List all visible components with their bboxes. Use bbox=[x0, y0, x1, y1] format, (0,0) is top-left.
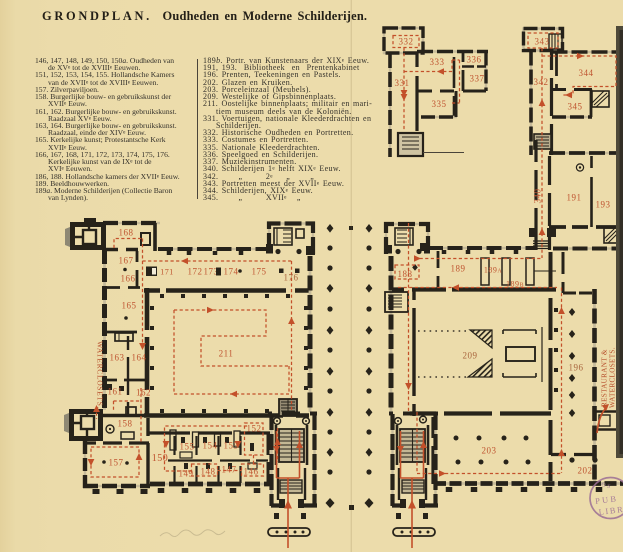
svg-text:340: 340 bbox=[533, 189, 543, 204]
svg-text:162: 162 bbox=[136, 388, 151, 398]
svg-text:174: 174 bbox=[224, 267, 239, 277]
svg-text:211: 211 bbox=[219, 349, 234, 359]
svg-text:146: 146 bbox=[244, 467, 259, 477]
svg-text:171: 171 bbox=[160, 268, 174, 277]
svg-text:167: 167 bbox=[119, 256, 134, 266]
svg-text:168: 168 bbox=[119, 228, 134, 238]
svg-text:344: 344 bbox=[579, 68, 594, 78]
svg-text:149: 149 bbox=[179, 469, 194, 479]
svg-text:OS: OS bbox=[601, 482, 613, 490]
svg-text:332: 332 bbox=[399, 37, 414, 47]
svg-text:161: 161 bbox=[108, 387, 123, 397]
svg-text:163: 163 bbox=[110, 353, 125, 363]
svg-text:203: 203 bbox=[482, 446, 497, 456]
svg-text:196: 196 bbox=[569, 363, 584, 373]
svg-text:LIBR: LIBR bbox=[598, 504, 623, 517]
svg-text:335: 335 bbox=[432, 99, 447, 109]
svg-text:345: 345 bbox=[568, 102, 583, 112]
svg-text:155: 155 bbox=[180, 442, 195, 452]
svg-text:165: 165 bbox=[122, 301, 137, 311]
svg-text:WATERCLOSETS.: WATERCLOSETS. bbox=[96, 341, 105, 409]
svg-text:164: 164 bbox=[132, 353, 147, 363]
svg-text:154: 154 bbox=[203, 441, 218, 451]
svg-text:150: 150 bbox=[152, 453, 169, 464]
svg-text:175: 175 bbox=[252, 267, 267, 277]
svg-text:152: 152 bbox=[247, 424, 262, 434]
svg-text:166: 166 bbox=[121, 274, 136, 284]
svg-text:189B: 189B bbox=[506, 280, 524, 289]
svg-text:RESTAURANT &: RESTAURANT & bbox=[601, 349, 609, 407]
svg-text:191: 191 bbox=[567, 193, 582, 203]
svg-text:153: 153 bbox=[224, 441, 239, 451]
svg-text:WATERCLOSETS.: WATERCLOSETS. bbox=[609, 347, 617, 408]
svg-text:343: 343 bbox=[535, 37, 550, 47]
svg-text:172: 172 bbox=[188, 267, 203, 277]
svg-text:158: 158 bbox=[118, 419, 133, 429]
svg-text:209: 209 bbox=[463, 351, 478, 361]
svg-text:342: 342 bbox=[534, 77, 549, 87]
svg-text:189A: 189A bbox=[484, 266, 503, 275]
svg-text:148: 148 bbox=[201, 467, 216, 477]
svg-text:336: 336 bbox=[467, 55, 482, 65]
svg-text:176: 176 bbox=[284, 273, 299, 283]
svg-text:193: 193 bbox=[596, 200, 611, 210]
svg-text:202: 202 bbox=[578, 466, 593, 476]
svg-text:333: 333 bbox=[430, 57, 445, 67]
svg-text:337: 337 bbox=[470, 74, 485, 84]
svg-text:189: 189 bbox=[451, 264, 466, 274]
svg-text:147: 147 bbox=[222, 465, 237, 475]
svg-text:188: 188 bbox=[398, 269, 413, 279]
svg-text:331: 331 bbox=[395, 78, 410, 88]
svg-text:157: 157 bbox=[109, 458, 124, 468]
